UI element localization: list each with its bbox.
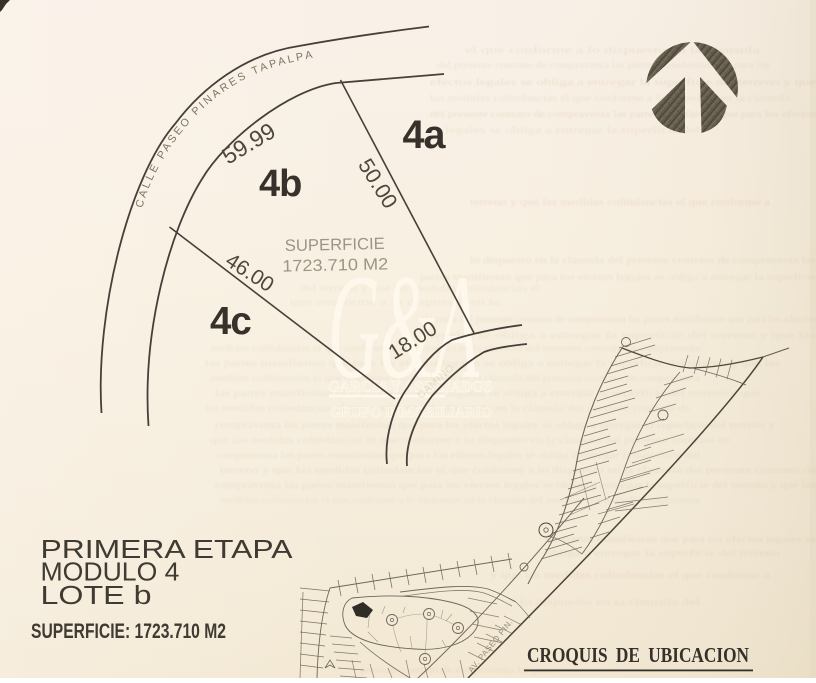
svg-text:legales se obliga a entregar l: legales se obliga a entregar la superfic… [445, 125, 701, 135]
svg-text:partes manifiestan que para lo: partes manifiestan que para los efectos … [420, 272, 816, 282]
svg-text:4b: 4b [259, 163, 301, 205]
svg-text:compraventa las partes manifie: compraventa las partes manifiestan que p… [215, 420, 776, 430]
svg-text:CROQUIS DE UBICACION: CROQUIS DE UBICACION [527, 643, 749, 667]
svg-text:terreno y que las medidas coli: terreno y que las medidas colindancias e… [470, 197, 770, 207]
svg-text:terreno y que las medidas coli: terreno y que las medidas colindancias e… [220, 465, 816, 475]
svg-text:GRUPO INMOBILIARIO: GRUPO INMOBILIARIO [330, 405, 492, 421]
svg-text:las partes manifiestan que par: las partes manifiestan que para los efec… [205, 358, 781, 368]
svg-text:GARCIA Y ASOCIADOS: GARCIA Y ASOCIADOS [328, 377, 492, 396]
svg-text:SUPERFICIE: 1723.710 M2: SUPERFICIE: 1723.710 M2 [31, 620, 226, 643]
svg-text:del presente contrato de compr: del presente contrato de compraventa las… [430, 109, 816, 119]
svg-text:4c: 4c [210, 300, 251, 343]
svg-text:clausula del presente contrato: clausula del presente contrato de compra… [420, 314, 816, 324]
svg-text:LOTE b: LOTE b [41, 582, 152, 610]
svg-text:4a: 4a [403, 113, 447, 157]
svg-text:las partes manifiestan que par: las partes manifiestan que para los efec… [545, 534, 816, 544]
svg-text:lo dispuesto en la clausula de: lo dispuesto en la clausula del presente… [470, 255, 816, 265]
svg-text:compraventa las partes manifie: compraventa las partes manifiestan que p… [215, 480, 816, 490]
svg-text:efectos legales se obliga a en: efectos legales se obliga a entregar la … [430, 77, 816, 87]
svg-text:SUPERFICIE: SUPERFICIE [285, 235, 385, 255]
svg-text:1723.710 M2: 1723.710 M2 [282, 255, 388, 275]
